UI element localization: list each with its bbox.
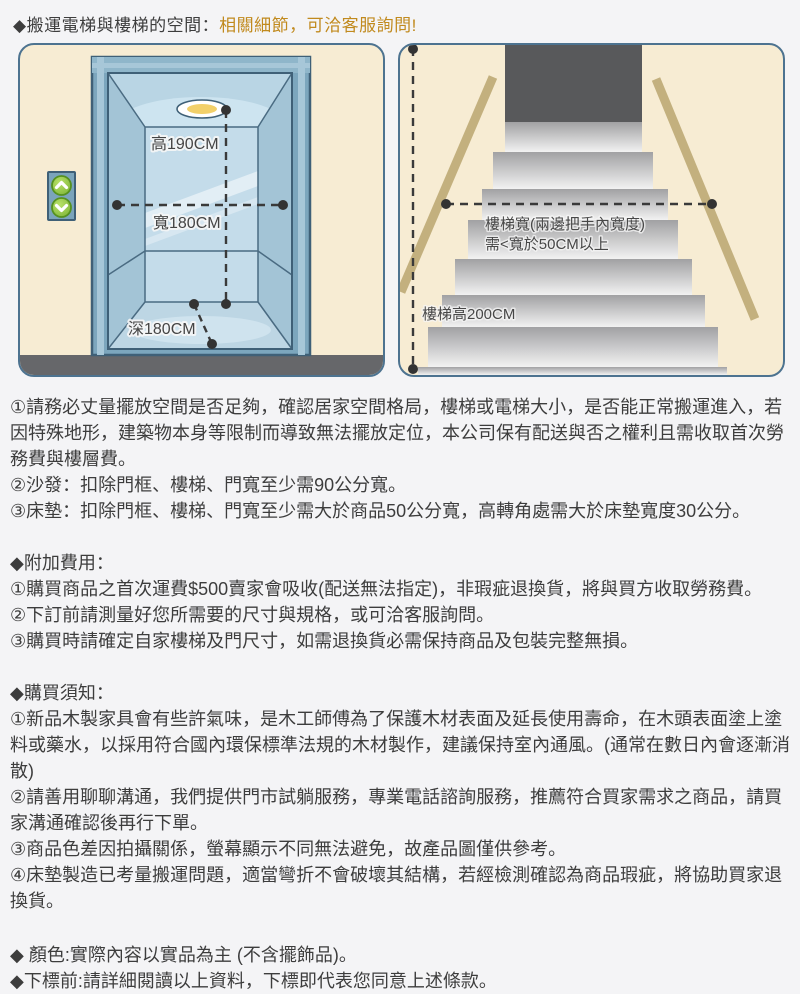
stair-step — [418, 367, 727, 375]
fees-section-title: ◆附加費用： — [10, 550, 790, 576]
page-title: ◆搬運電梯與樓梯的空間：相關細節，可洽客服詢問! — [0, 0, 800, 43]
elevator-depth-label: 深180CM — [128, 320, 196, 338]
footer-notes: ◆ 顏色:實際內容以實品為主 (不含擺飾品)。 ◆下標前:請詳細閱讀以上資料，下… — [10, 942, 790, 994]
stair-doorway — [505, 45, 642, 122]
notice-section-title: ◆購買須知： — [10, 680, 790, 706]
title-highlight: 相關細節，可洽客服詢問! — [219, 16, 417, 35]
stair-step — [455, 259, 692, 295]
notice-item-1: ①新品木製家具會有些許氣味，是木工師傅為了保護木材表面及延長使用壽命，在木頭表面… — [10, 706, 790, 784]
elevator-width-label: 寬180CM — [153, 214, 221, 232]
elevator-cab-interior — [108, 73, 292, 349]
stairs-illustration: 樓梯寬(兩邊把手內寬度) 需<寬於50CM以上 樓梯高200CM — [400, 45, 783, 375]
ceiling-light-bulb — [187, 104, 217, 114]
notice-item-3: ③商品色差因拍攝關係，螢幕顯示不同無法避免，故產品圖僅供參考。 — [10, 836, 790, 862]
elevator-height-label: 高190CM — [151, 135, 219, 153]
space-note-2: ②沙發：扣除門框、樓梯、門寬至少需90公分寬。 — [10, 472, 790, 498]
elevator-up-button-icon — [52, 176, 71, 195]
stair-width-label-line2: 需<寬於50CM以上 — [485, 235, 609, 253]
building-floor — [20, 355, 383, 375]
stair-step — [505, 122, 642, 152]
footer-agreement-note: ◆下標前:請詳細閱讀以上資料，下標即代表您同意上述條款。 — [10, 968, 790, 994]
stair-height-label: 樓梯高200CM — [422, 306, 515, 323]
title-prefix: ◆搬運電梯與樓梯的空間： — [13, 16, 219, 35]
fees-item-3: ③購買時請確定自家樓梯及門尺寸，如需退換貨必需保持商品及包裝完整無損。 — [10, 628, 790, 654]
elevator-down-button-icon — [52, 198, 71, 217]
stair-width-label-line1: 樓梯寬(兩邊把手內寬度) — [485, 215, 645, 233]
space-note-1: ①請務必丈量擺放空間是否足夠，確認居家空間格局，樓梯或電梯大小，是否能正常搬運進… — [10, 394, 790, 472]
elevator-illustration: 高190CM 寬180CM 深180CM — [20, 45, 383, 375]
notice-item-2: ②請善用聊聊溝通，我們提供門市試躺服務，專業電話諮詢服務，推薦符合買家需求之商品… — [10, 784, 790, 836]
elevator-call-buttons — [48, 172, 75, 220]
space-note-3: ③床墊：扣除門框、樓梯、門寬至少需大於商品50公分寬，高轉角處需大於床墊寬度30… — [10, 498, 790, 524]
product-info-page: ◆搬運電梯與樓梯的空間：相關細節，可洽客服詢問! — [0, 0, 800, 994]
diagram-row: 高190CM 寬180CM 深180CM — [18, 43, 800, 377]
footer-color-note: ◆ 顏色:實際內容以實品為主 (不含擺飾品)。 — [10, 942, 790, 968]
fees-item-1: ①購買商品之首次運費$500賣家會吸收(配送無法指定)，非瑕疵退換貨，將與買方收… — [10, 576, 790, 602]
stairs-diagram-panel: 樓梯寬(兩邊把手內寬度) 需<寬於50CM以上 樓梯高200CM — [398, 43, 785, 377]
notes-content: ①請務必丈量擺放空間是否足夠，確認居家空間格局，樓梯或電梯大小，是否能正常搬運進… — [0, 377, 800, 994]
notice-item-4: ④床墊製造已考量搬運問題，適當彎折不會破壞其結構，若經檢測確認為商品瑕疵，將協助… — [10, 862, 790, 914]
elevator-diagram-panel: 高190CM 寬180CM 深180CM — [18, 43, 385, 377]
stair-step — [493, 152, 653, 189]
fees-item-2: ②下訂前請測量好您所需要的尺寸與規格，或可洽客服詢問。 — [10, 602, 790, 628]
stair-step — [428, 327, 718, 367]
